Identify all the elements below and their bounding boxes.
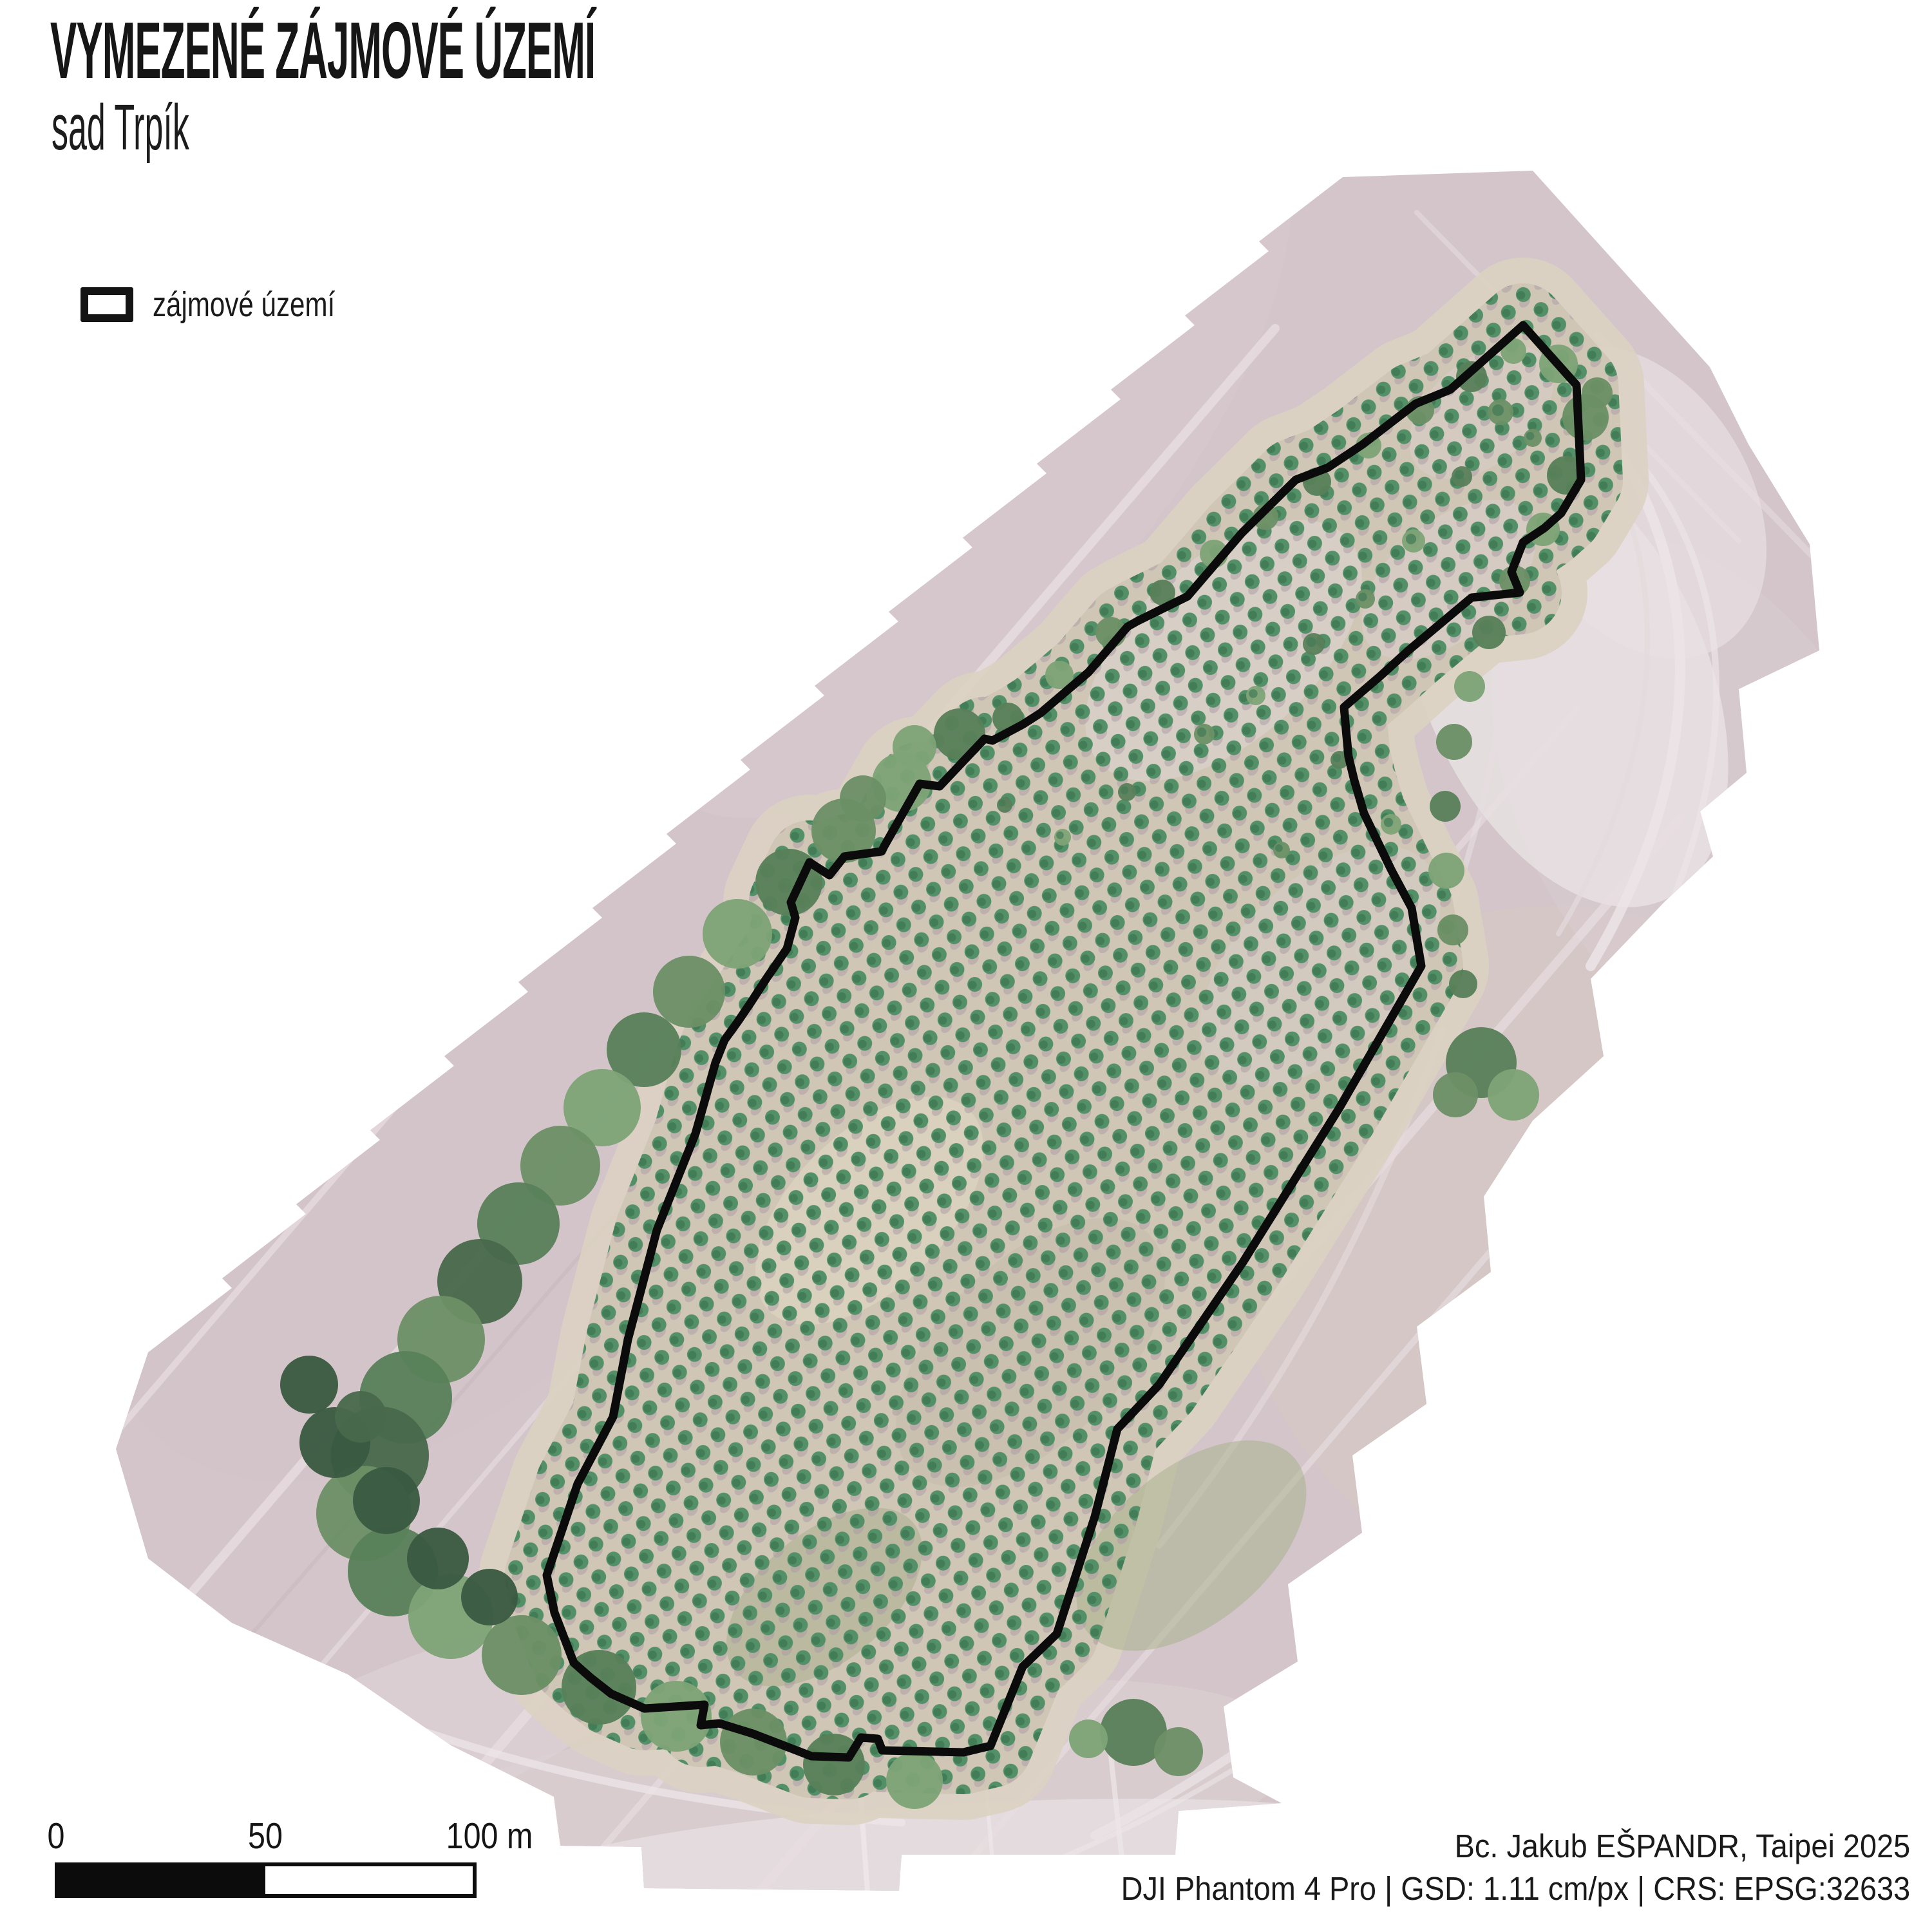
legend: zájmové území	[80, 285, 386, 325]
scalebar-tick-0: 0	[48, 1815, 65, 1857]
scalebar-tick-50: 50	[248, 1815, 283, 1857]
credits-author: Bc. Jakub EŠPANDR, Taipei 2025	[1121, 1825, 1910, 1868]
scalebar-labels: 0 50 100 m	[55, 1815, 518, 1857]
legend-aoi-swatch	[80, 287, 133, 322]
credits: Bc. Jakub EŠPANDR, Taipei 2025 DJI Phant…	[1052, 1825, 1910, 1911]
page-subtitle: sad Trpík	[52, 95, 618, 160]
map-sheet: VYMEZENÉ ZÁJMOVÉ ÚZEMÍ sad Trpík zájmové…	[0, 0, 1932, 1932]
title-block: VYMEZENÉ ZÁJMOVÉ ÚZEMÍ sad Trpík	[50, 10, 1140, 160]
credits-technical: DJI Phantom 4 Pro | GSD: 1.11 cm/px | CR…	[1121, 1868, 1910, 1910]
page-title: VYMEZENÉ ZÁJMOVÉ ÚZEMÍ	[50, 10, 595, 91]
scalebar-fill	[59, 1866, 265, 1894]
legend-aoi-label: zájmové území	[153, 285, 335, 325]
scalebar-tick-100: 100 m	[446, 1815, 533, 1857]
scalebar-bar	[55, 1862, 477, 1898]
scalebar: 0 50 100 m	[55, 1815, 518, 1898]
